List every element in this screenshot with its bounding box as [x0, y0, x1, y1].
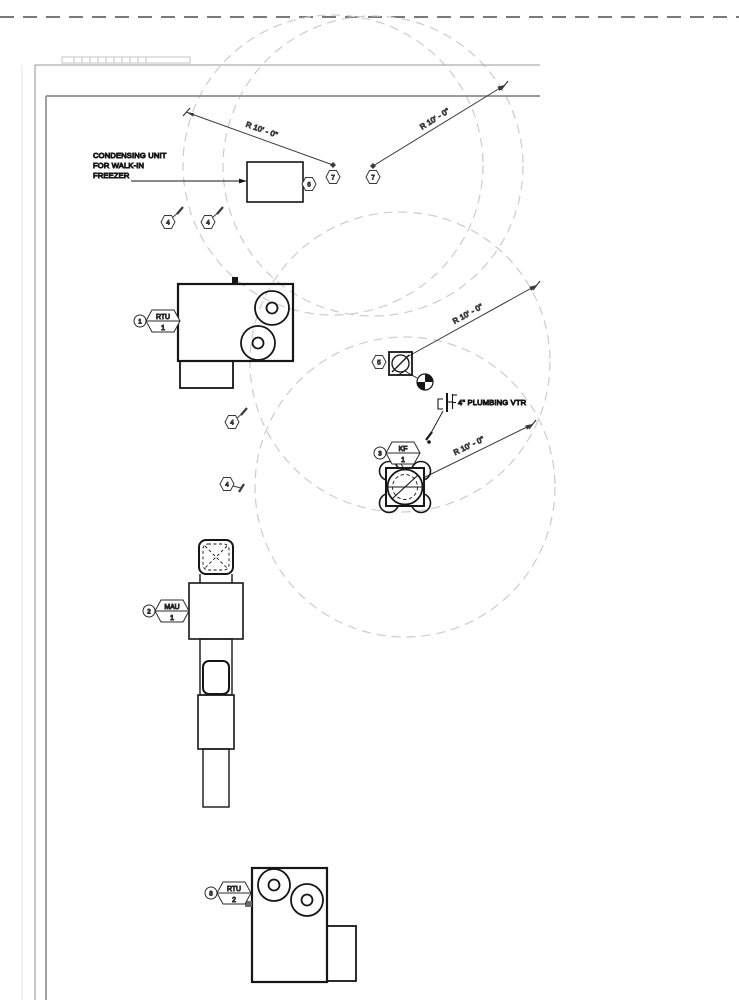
keynote-4-label: 4 — [206, 219, 210, 226]
tag-kf-1-system: KF — [399, 446, 408, 453]
keynote-5: 5 — [372, 356, 386, 369]
keynote-4-label: 4 — [230, 419, 234, 426]
radius-label-1: R 10' - 0" — [245, 120, 279, 140]
keynote-4-b: 4 — [201, 207, 223, 229]
keynotes: 4 4 4 4 5 6 7 — [161, 171, 386, 493]
condensing-note-line2: FOR WALK-IN — [93, 161, 144, 170]
radius-dim-1: R 10' - 0" — [183, 108, 336, 168]
tag-kf-1-unit: 1 — [401, 457, 405, 464]
radius-dim-2: R 10' - 0" — [370, 81, 508, 169]
tag-rtu-2-ref: 8 — [209, 890, 213, 897]
mechanical-roof-plan: R 10' - 0" R 10' - 0" R 10' - 0" R 10' -… — [0, 0, 739, 1000]
tag-rtu-2-system: RTU — [227, 886, 241, 893]
keynote-7-b: 7 — [366, 171, 380, 184]
keynote-5-label: 5 — [377, 359, 381, 366]
keynote-4-label: 4 — [225, 481, 229, 488]
condensing-note-line3: FREEZER — [93, 171, 130, 180]
equipment-tag-callouts: 1 RTU 1 2 MAU 1 3 KF 1 8 R — [134, 310, 420, 904]
equipment: CONDENSING UNIT FOR WALK-IN FREEZER — [93, 151, 527, 982]
rtu-1-unit — [178, 277, 293, 388]
keynote-7-a: 7 — [326, 171, 340, 184]
plumbing-vtr-note: 4" PLUMBING VTR — [458, 398, 527, 407]
tag-rtu-1-system: RTU — [156, 314, 170, 321]
tag-rtu-1: 1 RTU 1 — [134, 310, 180, 332]
radius-dim-3: R 10' - 0" — [407, 281, 540, 357]
mau-1-unit — [189, 540, 243, 807]
radius-dim-4: R 10' - 0" — [413, 420, 536, 483]
keynote-7-label: 7 — [331, 174, 335, 181]
keynote-4-d: 4 — [220, 478, 244, 493]
tag-rtu-2: 8 RTU 2 — [205, 882, 252, 904]
tag-mau-1-system: MAU — [164, 604, 179, 611]
tag-rtu-1-ref: 1 — [138, 318, 142, 325]
condensing-note-line1: CONDENSING UNIT — [93, 151, 167, 160]
keynote-4-label: 4 — [166, 219, 170, 226]
tag-mau-1-unit: 1 — [170, 615, 174, 622]
building-outline — [22, 57, 540, 1000]
tag-rtu-2-unit: 2 — [232, 897, 236, 904]
tag-kf-1-ref: 3 — [378, 450, 382, 457]
condensing-unit: CONDENSING UNIT FOR WALK-IN FREEZER — [93, 151, 303, 202]
tag-mau-1: 2 MAU 1 — [143, 600, 189, 622]
keynote-4-a: 4 — [161, 207, 183, 229]
clearance-circles — [183, 15, 555, 637]
tag-rtu-1-unit: 1 — [161, 325, 165, 332]
keynote-7-label: 7 — [371, 174, 375, 181]
exhaust-fan-5 — [389, 352, 417, 378]
roof-curb-strip — [62, 57, 190, 63]
keynote-6-label: 6 — [307, 181, 311, 188]
kitchen-fan-kf1 — [380, 462, 431, 513]
center-of-gravity-symbol — [417, 374, 433, 390]
keynote-4-c: 4 — [225, 408, 247, 429]
radius-label-3: R 10' - 0" — [451, 302, 484, 326]
rtu-2-unit — [245, 868, 356, 982]
keynote-6: 6 — [302, 178, 316, 191]
radius-label-4: R 10' - 0" — [452, 434, 486, 457]
tag-mau-1-ref: 2 — [147, 608, 151, 615]
